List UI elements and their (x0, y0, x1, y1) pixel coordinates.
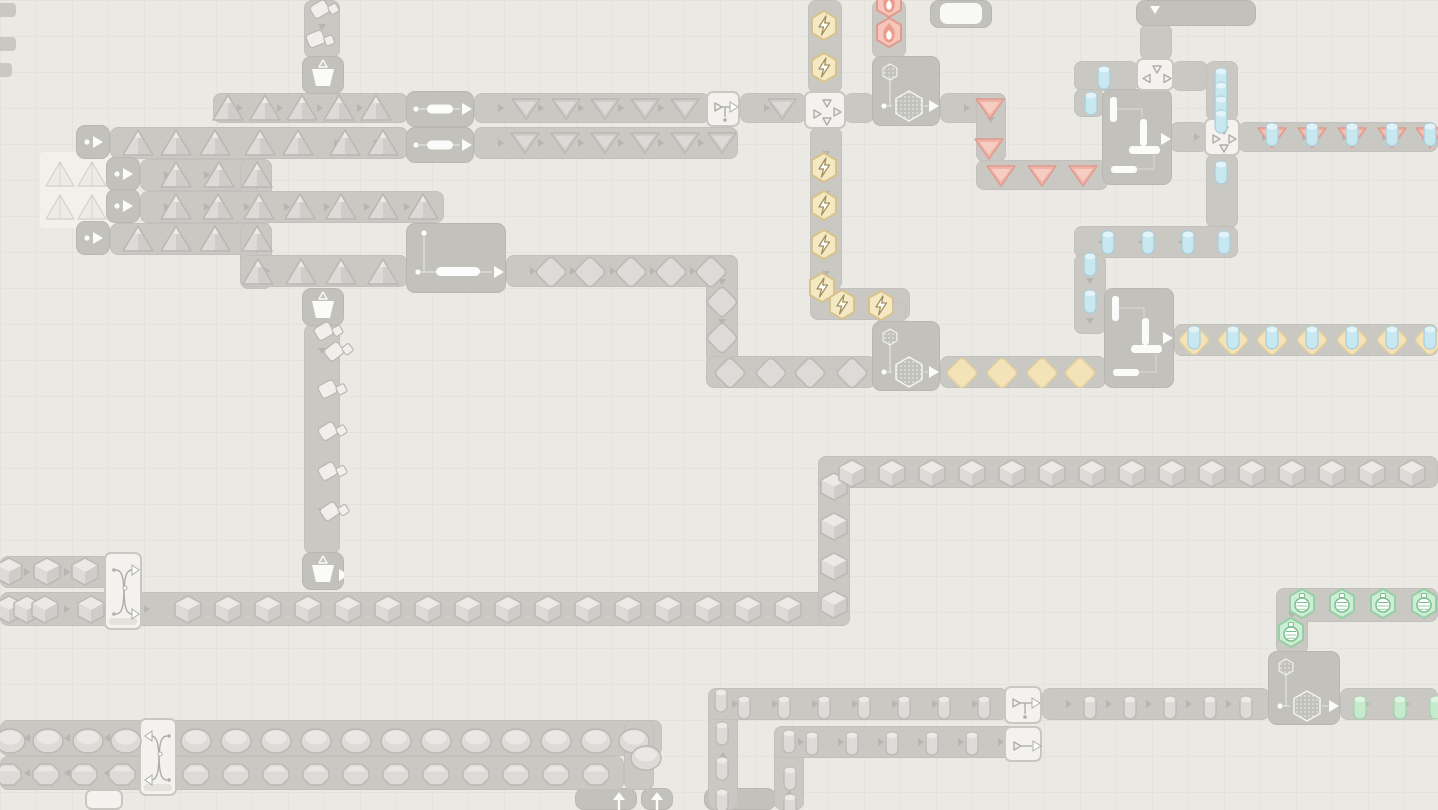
belt-arrow-icon (810, 368, 816, 376)
conveyor-belt[interactable] (1140, 24, 1172, 60)
factory-floor-canvas[interactable] (0, 0, 1438, 810)
machine-furnace-icon (406, 127, 474, 163)
conveyor-belt[interactable] (1074, 89, 1104, 117)
machine-furnace-icon (406, 91, 474, 127)
item-frag (0, 27, 28, 63)
machine-tunnel2[interactable] (302, 552, 344, 590)
machine-extractor[interactable] (76, 125, 110, 159)
belt-arrow-icon (1398, 336, 1404, 344)
belt-arrow-icon (184, 769, 190, 777)
machine-assembler-icon (1268, 651, 1340, 725)
belt-arrow-icon (1044, 368, 1050, 376)
conveyor-belt[interactable] (740, 93, 806, 123)
belt-arrow-icon (504, 605, 510, 613)
conveyor-belt[interactable] (708, 688, 1008, 720)
belt-arrow-icon (24, 769, 30, 777)
belt-arrow-icon (304, 769, 310, 777)
belt-arrow-icon (1318, 336, 1324, 344)
conveyor-belt[interactable] (304, 324, 340, 554)
belt-arrow-icon (237, 104, 243, 112)
conveyor-belt[interactable] (0, 556, 110, 588)
belt-arrow-icon (1178, 238, 1184, 246)
belt-arrow-icon (830, 520, 838, 526)
belt-arrow-icon (404, 203, 410, 211)
machine-lab-icon (1102, 89, 1172, 185)
belt-arrow-icon (538, 104, 544, 112)
belt-arrow-icon (1358, 336, 1364, 344)
machine-tunnel-icon (302, 288, 344, 326)
machine-swapper-icon (106, 554, 144, 632)
belt-arrow-icon (918, 738, 924, 746)
machine-whiteexit[interactable] (1004, 726, 1042, 762)
belt-arrow-icon (204, 171, 210, 179)
belt-arrow-icon (384, 769, 390, 777)
belt-arrow-icon (838, 738, 844, 746)
belt-arrow-icon (1080, 171, 1086, 179)
belt-arrow-icon (224, 734, 230, 742)
belt-arrow-icon (822, 191, 830, 197)
belt-arrow-icon (664, 605, 670, 613)
belt-arrow-icon (772, 700, 778, 708)
belt-arrow-icon (698, 139, 704, 147)
conveyor-belt[interactable] (1276, 588, 1308, 654)
belt-arrow-icon (964, 368, 970, 376)
belt-arrow-icon (464, 769, 470, 777)
belt-arrow-icon (324, 203, 330, 211)
belt-arrow-icon (1226, 700, 1232, 708)
belt-arrow-icon (1422, 133, 1428, 141)
belt-arrow-icon (1340, 601, 1346, 609)
conveyor-belt[interactable] (940, 356, 1106, 388)
belt-arrow-icon (64, 568, 70, 576)
belt-arrow-icon (384, 605, 390, 613)
belt-arrow-icon (317, 104, 323, 112)
belt-arrow-icon (374, 139, 380, 147)
belt-arrow-icon (821, 24, 829, 30)
item-frag-icon (0, 0, 28, 29)
belt-arrow-icon (264, 769, 270, 777)
belt-arrow-icon (464, 734, 470, 742)
belt-arrow-icon (610, 267, 616, 275)
belt-arrow-icon (252, 183, 260, 189)
belt-arrow-icon (1162, 468, 1168, 476)
machine-splitter4b[interactable] (1204, 118, 1240, 156)
conveyor-belt[interactable] (506, 255, 738, 287)
belt-arrow-icon (1218, 238, 1224, 246)
conveyor-belt[interactable] (808, 0, 842, 93)
conveyor-belt[interactable] (110, 127, 408, 159)
conveyor-belt[interactable] (0, 720, 662, 756)
belt-arrow-icon (174, 139, 180, 147)
belt-arrow-icon (718, 279, 726, 285)
belt-arrow-icon (584, 769, 590, 777)
belt-arrow-icon (304, 267, 310, 275)
belt-arrow-icon (842, 468, 848, 476)
machine-assembler-icon (872, 56, 940, 126)
belt-arrow-icon (830, 600, 838, 606)
machine-big-icon (406, 223, 506, 293)
belt-arrow-icon (224, 605, 230, 613)
machine-tunnel-icon (302, 56, 344, 94)
belt-arrow-icon (1040, 171, 1046, 179)
machine-plainbox[interactable] (1136, 0, 1256, 26)
machine-plainbox-icon (1136, 0, 1256, 26)
conveyor-belt[interactable] (1174, 324, 1438, 356)
machine-furnace[interactable] (406, 91, 474, 127)
belt-arrow-icon (544, 769, 550, 777)
belt-arrow-icon (64, 605, 70, 613)
belt-arrow-icon (732, 700, 738, 708)
machine-extractor-icon (76, 221, 110, 255)
conveyor-belt[interactable] (872, 0, 906, 58)
conveyor-belt[interactable] (140, 191, 444, 223)
belt-arrow-icon (64, 734, 70, 742)
machine-tsplit-icon (1006, 688, 1044, 726)
belt-arrow-icon (318, 508, 326, 514)
belt-arrow-icon (334, 139, 340, 147)
belt-arrow-icon (174, 235, 180, 243)
belt-arrow-icon (690, 267, 696, 275)
belt-arrow-icon (1288, 612, 1296, 618)
belt-arrow-icon (1122, 468, 1128, 476)
belt-arrow-icon (504, 734, 510, 742)
belt-arrow-icon (1362, 468, 1368, 476)
belt-arrow-icon (1186, 700, 1192, 708)
belt-arrow-icon (164, 171, 170, 179)
belt-arrow-icon (264, 267, 270, 275)
conveyor-belt[interactable] (774, 726, 1036, 758)
belt-arrow-icon (1364, 700, 1370, 708)
belt-arrow-icon (318, 24, 326, 30)
belt-arrow-icon (1138, 238, 1144, 246)
belt-arrow-icon (852, 700, 858, 708)
conveyor-belt[interactable] (474, 127, 738, 159)
conveyor-belt[interactable] (706, 255, 738, 365)
belt-arrow-icon (214, 235, 220, 243)
belt-arrow-icon (344, 605, 350, 613)
conveyor-belt[interactable] (810, 127, 842, 290)
belt-arrow-icon (1402, 468, 1408, 476)
belt-arrow-icon (744, 605, 750, 613)
belt-arrow-icon (584, 734, 590, 742)
machine-tunnel[interactable] (302, 288, 344, 326)
belt-arrow-icon (24, 568, 30, 576)
belt-arrow-icon (164, 203, 170, 211)
belt-arrow-icon (1084, 368, 1090, 376)
belt-arrow-icon (578, 104, 584, 112)
belt-arrow-icon (892, 700, 898, 708)
belt-arrow-icon (184, 605, 190, 613)
conveyor-belt[interactable] (1074, 61, 1138, 91)
belt-arrow-icon (1194, 133, 1200, 141)
machine-assembler[interactable] (1268, 651, 1340, 725)
machine-splitter3-icon (1138, 60, 1176, 93)
belt-arrow-icon (1242, 468, 1248, 476)
belt-arrow-icon (834, 300, 840, 308)
machine-swapper[interactable] (104, 552, 142, 630)
belt-arrow-icon (64, 769, 70, 777)
conveyor-belt[interactable] (1238, 122, 1438, 152)
machine-extractor-icon (106, 189, 140, 223)
machine-whiteexit-icon (1006, 728, 1044, 764)
belt-arrow-icon (318, 428, 326, 434)
belt-arrow-icon (618, 139, 624, 147)
machine-lab-icon (1104, 288, 1174, 388)
belt-arrow-icon (1380, 601, 1386, 609)
belt-arrow-icon (530, 267, 536, 275)
item-frag (0, 53, 24, 89)
belt-arrow-icon (464, 605, 470, 613)
item-frag (0, 0, 28, 29)
conveyor-belt[interactable] (976, 160, 1108, 190)
machine-furnace[interactable] (406, 127, 474, 163)
conveyor-belt[interactable] (304, 0, 340, 58)
belt-arrow-icon (1066, 700, 1072, 708)
belt-arrow-icon (1146, 700, 1152, 708)
machine-lab[interactable] (1104, 288, 1174, 388)
belt-arrow-icon (24, 605, 30, 613)
belt-arrow-icon (318, 348, 326, 354)
belt-arrow-icon (1420, 601, 1426, 609)
conveyor-belt[interactable] (976, 93, 1006, 162)
belt-arrow-icon (357, 104, 363, 112)
belt-arrow-icon (184, 734, 190, 742)
belt-arrow-icon (1282, 468, 1288, 476)
belt-arrow-icon (1004, 368, 1010, 376)
conveyor-belt[interactable] (0, 756, 624, 790)
machine-bottombox-icon (575, 788, 637, 810)
belt-arrow-icon (544, 734, 550, 742)
machine-splitter4-icon (806, 93, 848, 131)
belt-arrow-icon (785, 790, 793, 796)
belt-arrow-icon (1382, 133, 1388, 141)
belt-arrow-icon (570, 267, 576, 275)
belt-arrow-icon (24, 734, 30, 742)
belt-arrow-icon (730, 368, 736, 376)
belt-arrow-icon (1262, 133, 1268, 141)
belt-arrow-icon (498, 104, 504, 112)
belt-arrow-icon (214, 139, 220, 147)
belt-arrow-icon (1198, 336, 1204, 344)
belt-arrow-icon (538, 139, 544, 147)
belt-arrow-icon (277, 104, 283, 112)
belt-arrow-icon (932, 700, 938, 708)
belt-arrow-icon (878, 738, 884, 746)
machine-extractor-icon (106, 157, 140, 191)
belt-arrow-icon (1342, 133, 1348, 141)
belt-arrow-icon (384, 267, 390, 275)
belt-arrow-icon (304, 605, 310, 613)
belt-arrow-icon (104, 769, 110, 777)
machine-edgebox[interactable] (930, 0, 992, 28)
machine-tsplit[interactable] (1004, 686, 1042, 724)
belt-arrow-icon (618, 104, 624, 112)
machine-swapper[interactable] (139, 718, 177, 796)
belt-arrow-icon (822, 231, 830, 237)
belt-arrow-icon (304, 734, 310, 742)
belt-arrow-icon (1086, 318, 1094, 324)
belt-arrow-icon (424, 734, 430, 742)
conveyor-belt[interactable] (1074, 254, 1106, 334)
belt-arrow-icon (770, 368, 776, 376)
belt-arrow-icon (504, 769, 510, 777)
belt-arrow-icon (224, 769, 230, 777)
belt-arrow-icon (635, 744, 643, 750)
machine-big[interactable] (406, 223, 506, 293)
belt-arrow-icon (1086, 278, 1094, 284)
belt-arrow-icon (498, 139, 504, 147)
belt-arrow-icon (1218, 178, 1226, 184)
conveyor-belt[interactable] (1172, 61, 1208, 91)
machine-tunnel2-icon (302, 552, 344, 590)
item-frag-icon (0, 53, 24, 89)
machine-extractor[interactable] (106, 157, 140, 191)
belt-arrow-icon (344, 769, 350, 777)
belt-arrow-icon (318, 468, 326, 474)
belt-arrow-icon (719, 752, 727, 758)
belt-arrow-icon (254, 139, 260, 147)
belt-arrow-icon (264, 605, 270, 613)
belt-arrow-icon (658, 139, 664, 147)
belt-arrow-icon (204, 203, 210, 211)
conveyor-belt[interactable] (844, 93, 874, 123)
belt-arrow-icon (1098, 72, 1104, 80)
belt-arrow-icon (624, 605, 630, 613)
item-frag-icon (0, 27, 28, 63)
conveyor-belt[interactable] (1170, 122, 1208, 152)
conveyor-belt[interactable] (706, 356, 876, 388)
machine-splitter3[interactable] (1136, 58, 1174, 91)
conveyor-belt[interactable] (240, 255, 408, 287)
belt-arrow-icon (1042, 468, 1048, 476)
belt-arrow-icon (424, 769, 430, 777)
belt-arrow-icon (972, 700, 978, 708)
conveyor-belt[interactable] (818, 456, 1438, 488)
machine-edgebox-icon (930, 0, 992, 28)
belt-arrow-icon (544, 605, 550, 613)
machine-splitter4[interactable] (804, 91, 846, 129)
belt-arrow-icon (650, 267, 656, 275)
machine-assembler[interactable] (872, 321, 940, 391)
belt-arrow-icon (584, 605, 590, 613)
belt-arrow-icon (784, 605, 790, 613)
belt-arrow-icon (1098, 238, 1104, 246)
belt-arrow-icon (830, 560, 838, 566)
belt-arrow-icon (812, 700, 818, 708)
belt-arrow-icon (1278, 336, 1284, 344)
machine-bottombox[interactable] (641, 788, 673, 810)
belt-arrow-icon (424, 605, 430, 613)
belt-arrow-icon (284, 203, 290, 211)
belt-arrow-icon (658, 104, 664, 112)
machine-extractor[interactable] (76, 221, 110, 255)
belt-arrow-icon (882, 468, 888, 476)
machine-tsplit-icon (708, 93, 742, 129)
belt-arrow-icon (1404, 700, 1410, 708)
machine-bottombox[interactable] (575, 788, 637, 810)
belt-arrow-icon (578, 139, 584, 147)
machine-lab[interactable] (1102, 89, 1172, 185)
belt-arrow-icon (104, 734, 110, 742)
belt-arrow-icon (964, 104, 970, 112)
machine-whitestub[interactable] (85, 789, 123, 810)
belt-arrow-icon (885, 24, 893, 30)
machine-extractor-icon (76, 125, 110, 159)
belt-arrow-icon (821, 64, 829, 70)
belt-arrow-icon (294, 139, 300, 147)
belt-arrow-icon (1106, 700, 1112, 708)
belt-arrow-icon (252, 247, 260, 253)
belt-arrow-icon (987, 117, 995, 123)
belt-arrow-icon (1000, 171, 1006, 179)
belt-arrow-icon (718, 319, 726, 325)
belt-arrow-icon (244, 203, 250, 211)
belt-arrow-icon (822, 151, 830, 157)
belt-arrow-icon (364, 203, 370, 211)
machine-swapper-icon (141, 720, 179, 798)
machine-assembler[interactable] (872, 56, 940, 126)
conveyor-belt[interactable] (1042, 688, 1270, 720)
belt-arrow-icon (344, 267, 350, 275)
conveyor-belt[interactable] (474, 93, 710, 123)
conveyor-belt[interactable] (1206, 61, 1238, 121)
belt-arrow-icon (134, 139, 140, 147)
belt-arrow-icon (962, 468, 968, 476)
conveyor-belt[interactable] (624, 720, 654, 790)
belt-arrow-icon (344, 734, 350, 742)
belt-arrow-icon (144, 605, 150, 613)
belt-arrow-icon (822, 271, 830, 277)
belt-arrow-icon (1238, 336, 1244, 344)
machine-extractor[interactable] (106, 189, 140, 223)
machine-tunnel[interactable] (302, 56, 344, 94)
belt-arrow-icon (704, 605, 710, 613)
belt-arrow-icon (1202, 468, 1208, 476)
belt-arrow-icon (719, 792, 727, 798)
belt-arrow-icon (318, 388, 326, 394)
belt-arrow-icon (384, 734, 390, 742)
machine-bottombox-icon (641, 788, 673, 810)
machine-assembler-icon (872, 321, 940, 391)
belt-arrow-icon (922, 468, 928, 476)
belt-arrow-icon (1082, 468, 1088, 476)
machine-splitter4b-icon (1206, 120, 1242, 158)
belt-arrow-icon (1322, 468, 1328, 476)
conveyor-belt[interactable] (1206, 154, 1238, 228)
belt-arrow-icon (850, 368, 856, 376)
belt-arrow-icon (264, 734, 270, 742)
belt-arrow-icon (1302, 133, 1308, 141)
belt-arrow-icon (1002, 468, 1008, 476)
belt-arrow-icon (764, 104, 770, 112)
conveyor-belt[interactable] (213, 93, 408, 123)
belt-arrow-icon (1218, 85, 1226, 91)
machine-tsplit[interactable] (706, 91, 740, 127)
belt-arrow-icon (798, 738, 804, 746)
belt-arrow-icon (134, 235, 140, 243)
belt-arrow-icon (958, 738, 964, 746)
conveyor-belt[interactable] (1340, 688, 1438, 720)
